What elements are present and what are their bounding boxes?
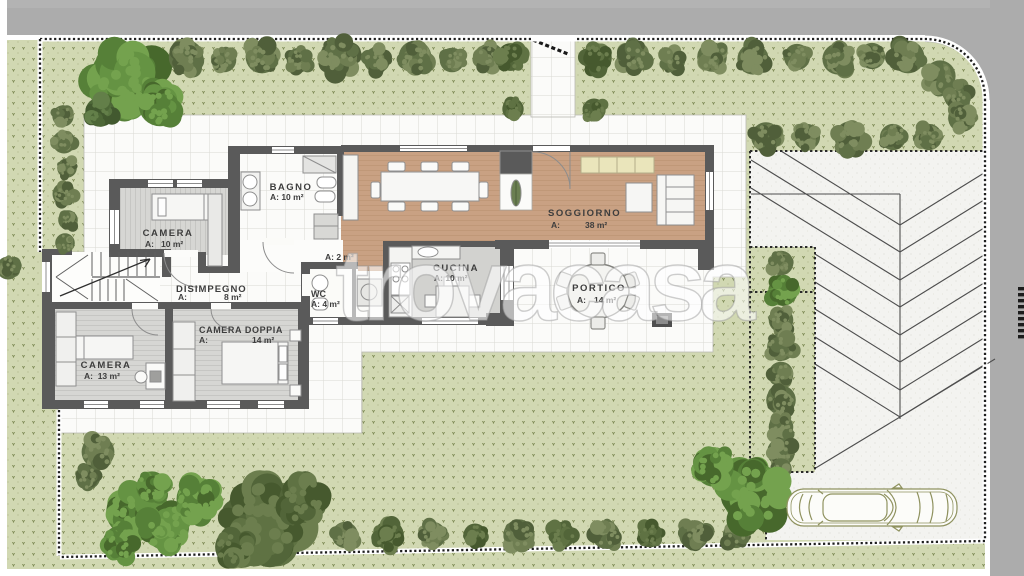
svg-text:CAMERA: CAMERA — [143, 228, 194, 239]
svg-text:CAMERA: CAMERA — [81, 360, 132, 371]
svg-text:A:: A: — [178, 292, 187, 302]
svg-text:A: 10 m²: A: 10 m² — [145, 239, 183, 249]
svg-text:A: 10 m²: A: 10 m² — [270, 192, 304, 202]
svg-text:A:: A: — [199, 335, 208, 345]
svg-text:trovacasa: trovacasa — [335, 228, 757, 342]
svg-text:WC: WC — [311, 289, 326, 299]
svg-text:CAMERA DOPPIA: CAMERA DOPPIA — [199, 325, 283, 335]
svg-text:SOGGIORNO: SOGGIORNO — [548, 208, 621, 219]
svg-text:A: 13 m²: A: 13 m² — [84, 371, 120, 381]
svg-text:8 m²: 8 m² — [224, 292, 242, 302]
svg-text:14 m²: 14 m² — [252, 335, 274, 345]
